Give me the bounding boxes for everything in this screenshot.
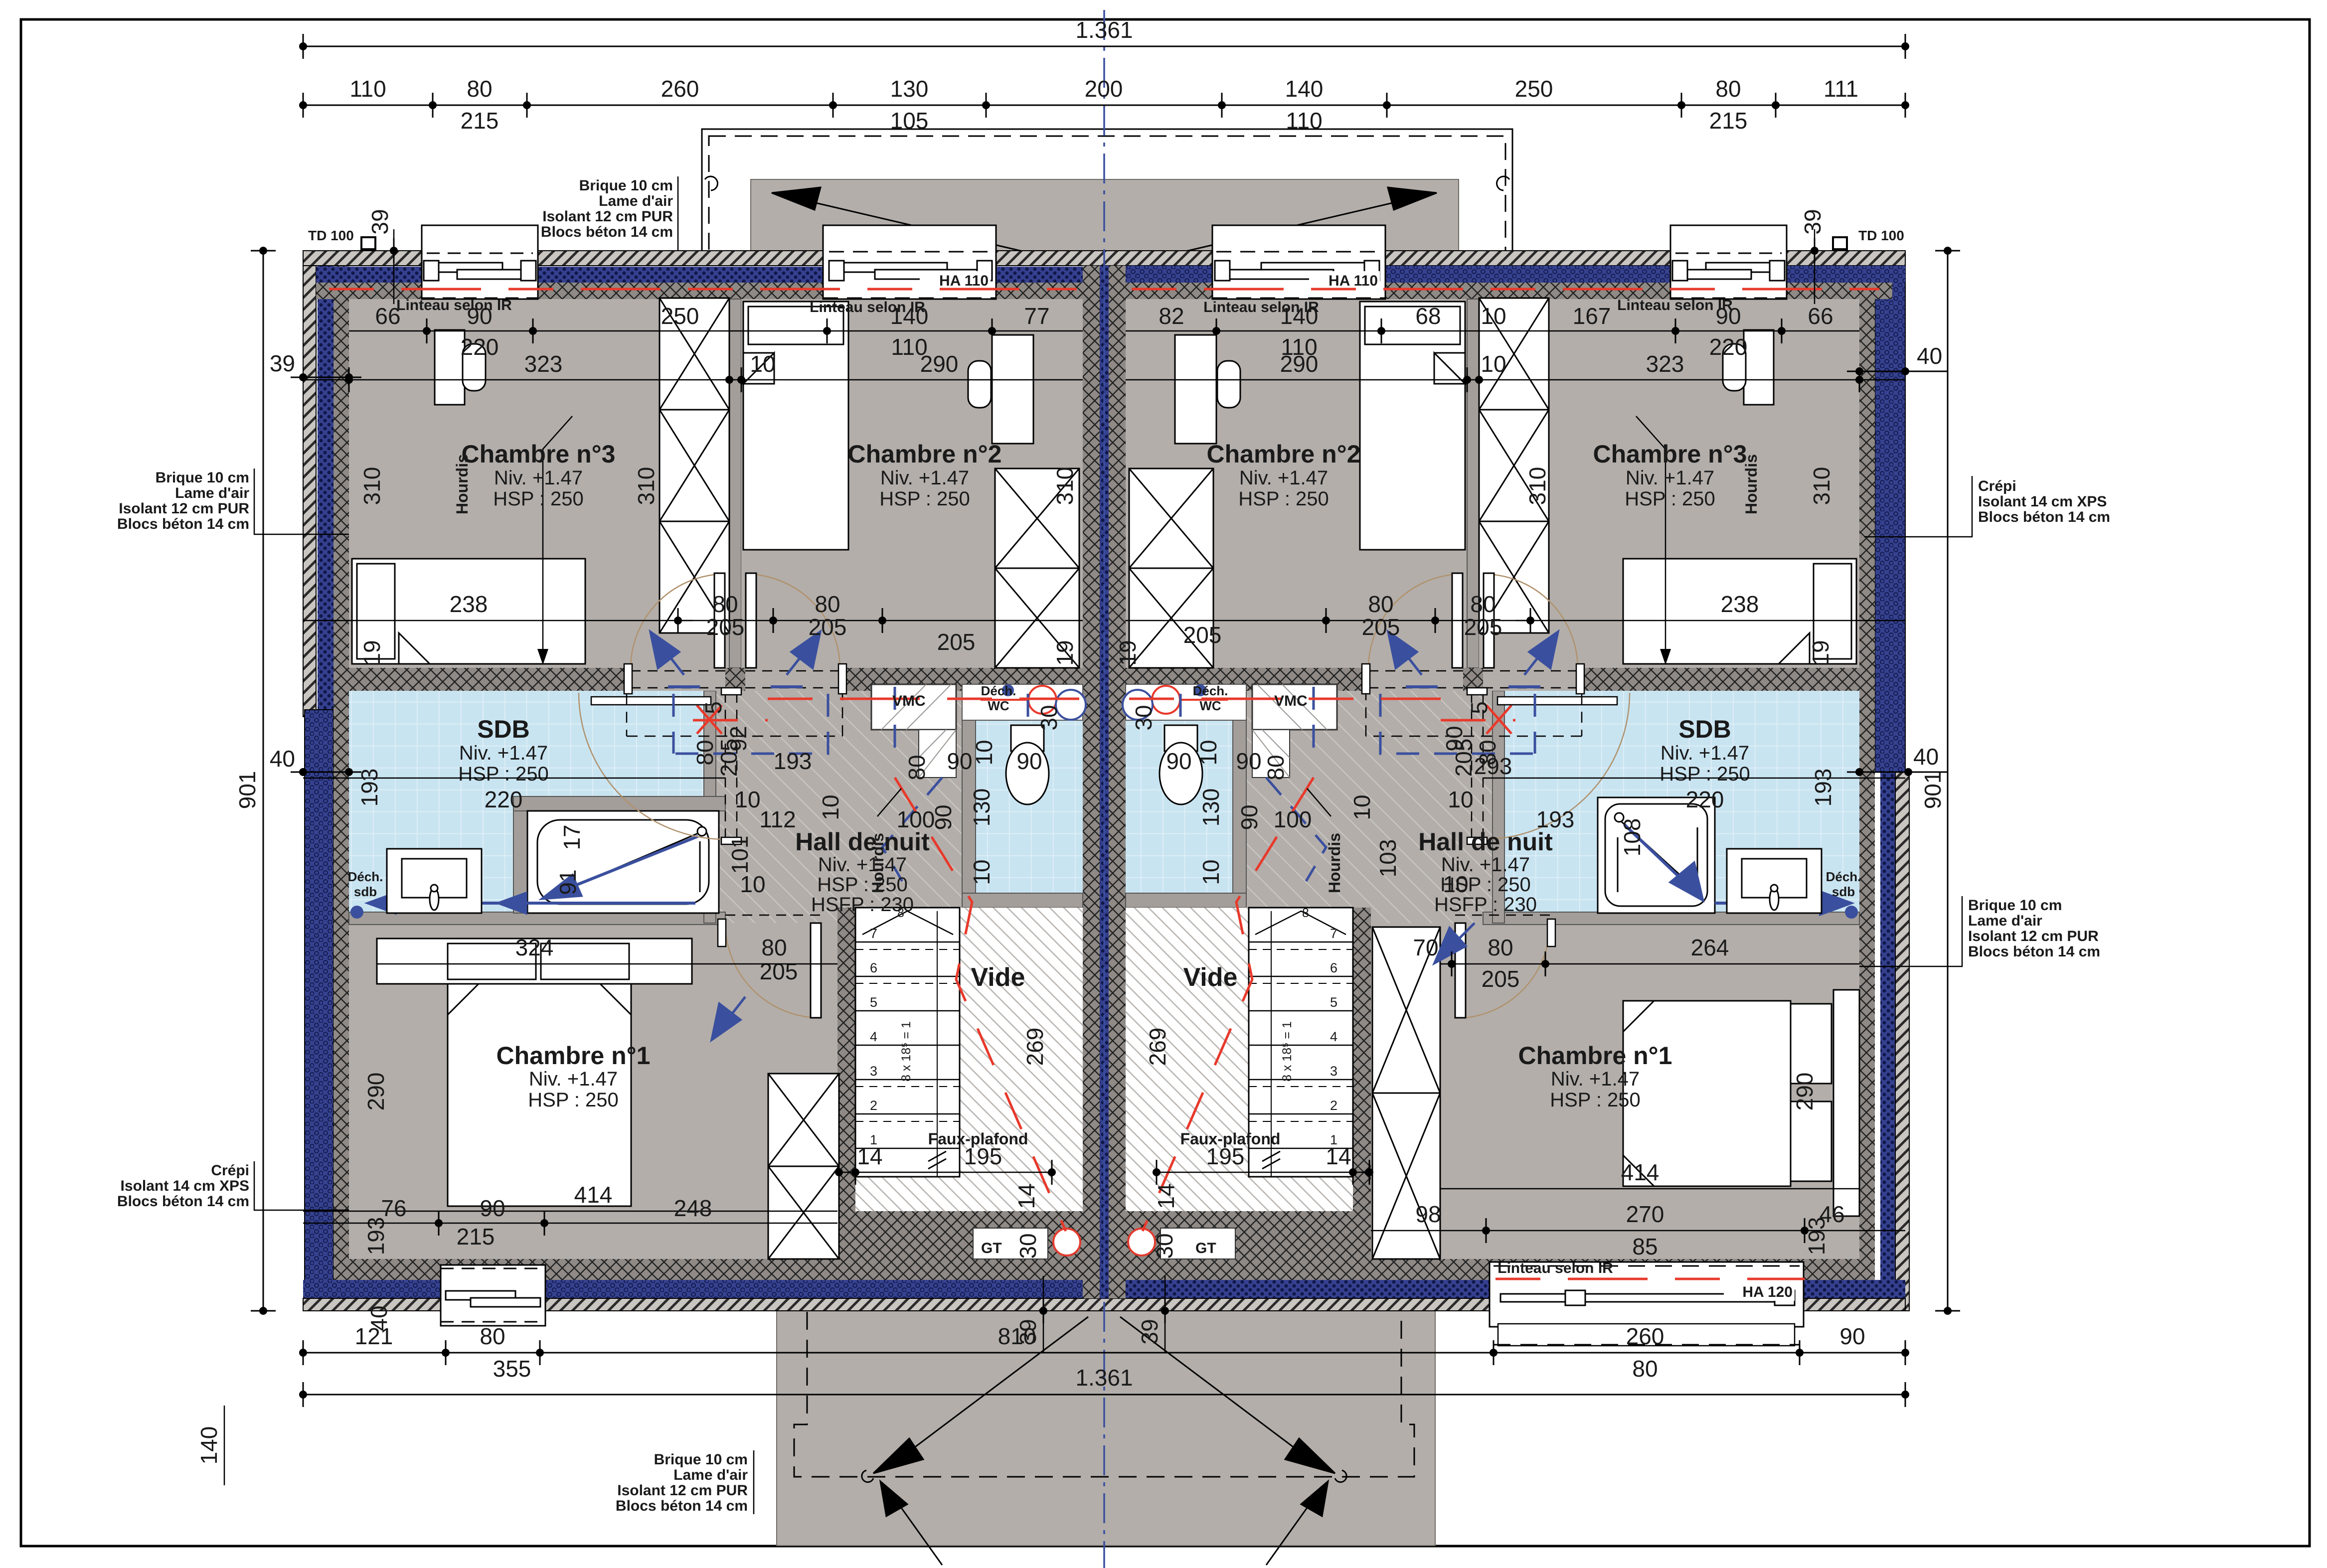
svg-text:Brique 10 cm: Brique 10 cm xyxy=(156,470,249,486)
svg-text:4: 4 xyxy=(1330,1029,1337,1044)
svg-text:17: 17 xyxy=(559,824,585,850)
svg-text:Blocs béton 14 cm: Blocs béton 14 cm xyxy=(1968,943,2100,960)
svg-text:310: 310 xyxy=(633,467,659,505)
svg-text:324: 324 xyxy=(515,935,554,960)
svg-text:10: 10 xyxy=(969,859,995,885)
svg-text:7: 7 xyxy=(1330,926,1337,941)
svg-text:10: 10 xyxy=(1448,786,1473,812)
svg-text:Crépi: Crépi xyxy=(1978,478,2016,494)
svg-text:66: 66 xyxy=(1808,303,1833,329)
svg-text:90: 90 xyxy=(930,804,956,830)
svg-text:66: 66 xyxy=(375,303,400,329)
svg-text:Niv. +1.47: Niv. +1.47 xyxy=(494,467,583,489)
svg-text:82: 82 xyxy=(1159,303,1184,329)
svg-text:270: 270 xyxy=(1626,1201,1664,1227)
svg-text:HSFP : 230: HSFP : 230 xyxy=(811,894,914,916)
svg-text:Chambre n°3: Chambre n°3 xyxy=(1593,440,1747,468)
svg-text:Isolant 14 cm XPS: Isolant 14 cm XPS xyxy=(1978,493,2107,510)
svg-text:Déch.: Déch. xyxy=(1826,869,1861,884)
svg-text:Blocs béton 14 cm: Blocs béton 14 cm xyxy=(616,1498,748,1514)
svg-text:70: 70 xyxy=(1413,935,1438,960)
svg-text:30: 30 xyxy=(1015,1233,1041,1258)
svg-text:205: 205 xyxy=(1183,622,1222,648)
svg-text:220: 220 xyxy=(1709,334,1748,360)
svg-text:205: 205 xyxy=(1482,966,1520,992)
svg-text:193: 193 xyxy=(356,769,382,807)
svg-text:SDB: SDB xyxy=(477,715,530,743)
svg-text:Niv. +1.47: Niv. +1.47 xyxy=(1661,742,1749,764)
svg-text:Chambre n°1: Chambre n°1 xyxy=(1518,1042,1672,1070)
svg-text:TD 100: TD 100 xyxy=(1858,228,1904,243)
svg-text:80: 80 xyxy=(1488,935,1513,960)
svg-text:220: 220 xyxy=(1686,786,1724,812)
svg-text:68: 68 xyxy=(1415,303,1441,329)
svg-text:90: 90 xyxy=(1016,748,1042,774)
svg-text:90: 90 xyxy=(1236,748,1261,774)
svg-text:TD 100: TD 100 xyxy=(308,228,354,243)
svg-text:10: 10 xyxy=(971,740,997,765)
svg-text:100: 100 xyxy=(1274,806,1312,832)
svg-text:Isolant 14 cm XPS: Isolant 14 cm XPS xyxy=(121,1178,249,1194)
svg-text:Hall de nuit: Hall de nuit xyxy=(1418,828,1553,856)
svg-text:HSP : 250: HSP : 250 xyxy=(1660,763,1750,785)
svg-text:3: 3 xyxy=(870,1064,877,1079)
svg-text:10: 10 xyxy=(750,351,775,377)
svg-text:Chambre n°3: Chambre n°3 xyxy=(462,440,616,468)
svg-text:HSP : 250: HSP : 250 xyxy=(1238,488,1329,510)
svg-text:80: 80 xyxy=(761,935,787,960)
svg-text:Blocs béton 14 cm: Blocs béton 14 cm xyxy=(117,1193,249,1210)
svg-text:1.361: 1.361 xyxy=(1075,17,1133,43)
svg-text:290: 290 xyxy=(1280,351,1319,377)
svg-text:30: 30 xyxy=(1036,705,1062,730)
svg-text:80: 80 xyxy=(1470,591,1496,617)
svg-text:80: 80 xyxy=(467,76,492,102)
svg-text:HSP : 250: HSP : 250 xyxy=(528,1089,619,1111)
svg-text:215: 215 xyxy=(1709,108,1748,134)
svg-text:260: 260 xyxy=(661,76,699,102)
svg-text:Crépi: Crépi xyxy=(211,1162,249,1179)
svg-text:46: 46 xyxy=(1819,1201,1844,1227)
svg-text:Lame d'air: Lame d'air xyxy=(673,1467,748,1483)
svg-text:14: 14 xyxy=(1153,1183,1179,1209)
svg-text:GT: GT xyxy=(981,1240,1002,1256)
svg-text:VMC: VMC xyxy=(892,693,926,709)
svg-text:Vide: Vide xyxy=(971,963,1025,992)
svg-text:205: 205 xyxy=(1362,614,1400,640)
svg-text:290: 290 xyxy=(1792,1073,1818,1111)
svg-text:40: 40 xyxy=(1917,343,1942,369)
svg-text:205: 205 xyxy=(937,629,976,655)
svg-text:Linteau selon IR: Linteau selon IR xyxy=(1497,1260,1613,1276)
svg-text:193: 193 xyxy=(1536,806,1575,832)
svg-text:HSP : 250: HSP : 250 xyxy=(879,488,970,510)
svg-text:10: 10 xyxy=(1198,859,1224,885)
svg-text:200: 200 xyxy=(1085,76,1123,102)
svg-text:WC: WC xyxy=(1199,698,1221,713)
svg-text:10: 10 xyxy=(1481,351,1506,377)
svg-text:10: 10 xyxy=(1195,740,1221,765)
svg-text:92: 92 xyxy=(725,726,751,751)
svg-text:Linteau selon IR: Linteau selon IR xyxy=(396,297,512,314)
svg-text:Déch.: Déch. xyxy=(1193,683,1228,698)
svg-text:264: 264 xyxy=(1691,935,1729,960)
svg-text:Niv. +1.47: Niv. +1.47 xyxy=(1626,467,1714,489)
svg-text:HSP : 250: HSP : 250 xyxy=(1550,1089,1641,1111)
svg-text:290: 290 xyxy=(363,1073,389,1111)
svg-text:205: 205 xyxy=(809,614,847,640)
svg-text:310: 310 xyxy=(1809,467,1834,505)
svg-text:290: 290 xyxy=(920,351,959,377)
svg-text:Isolant 12 cm PUR: Isolant 12 cm PUR xyxy=(617,1482,748,1499)
svg-text:10: 10 xyxy=(740,871,765,897)
svg-text:Niv. +1.47: Niv. +1.47 xyxy=(1239,467,1328,489)
svg-text:14: 14 xyxy=(1326,1143,1351,1169)
svg-text:40: 40 xyxy=(1913,744,1939,770)
svg-text:Brique 10 cm: Brique 10 cm xyxy=(579,177,673,194)
svg-text:80: 80 xyxy=(815,591,840,617)
svg-text:19: 19 xyxy=(1052,640,1078,665)
svg-text:269: 269 xyxy=(1145,1028,1170,1066)
svg-text:30: 30 xyxy=(1131,705,1157,730)
svg-text:7: 7 xyxy=(870,926,877,941)
svg-text:Isolant 12 cm PUR: Isolant 12 cm PUR xyxy=(119,500,249,517)
svg-text:193: 193 xyxy=(1810,769,1836,807)
svg-text:80: 80 xyxy=(1368,591,1393,617)
svg-text:Isolant 12 cm PUR: Isolant 12 cm PUR xyxy=(542,208,673,225)
svg-text:85: 85 xyxy=(1632,1234,1658,1259)
svg-text:355: 355 xyxy=(493,1356,531,1382)
svg-text:5: 5 xyxy=(1330,995,1337,1010)
svg-text:19: 19 xyxy=(1115,640,1141,665)
svg-text:140: 140 xyxy=(1285,76,1324,102)
svg-text:Chambre n°1: Chambre n°1 xyxy=(497,1042,651,1070)
svg-text:1.361: 1.361 xyxy=(1075,1365,1133,1391)
svg-text:220: 220 xyxy=(485,786,523,812)
svg-text:195: 195 xyxy=(1206,1143,1245,1169)
svg-text:215: 215 xyxy=(457,1224,495,1250)
svg-text:414: 414 xyxy=(574,1182,613,1208)
svg-text:4: 4 xyxy=(870,1029,877,1044)
svg-text:Blocs béton 14 cm: Blocs béton 14 cm xyxy=(541,224,673,240)
svg-text:14: 14 xyxy=(857,1143,882,1169)
svg-text:39: 39 xyxy=(1137,1319,1163,1344)
svg-text:sdb: sdb xyxy=(1832,884,1855,899)
svg-text:19: 19 xyxy=(359,640,385,665)
svg-text:901: 901 xyxy=(1920,771,1946,809)
svg-text:80: 80 xyxy=(480,1323,505,1349)
svg-text:90: 90 xyxy=(947,748,972,774)
svg-text:5: 5 xyxy=(700,701,726,714)
svg-text:Brique 10 cm: Brique 10 cm xyxy=(1968,897,2062,914)
svg-text:103: 103 xyxy=(1375,839,1401,878)
svg-text:98: 98 xyxy=(1415,1201,1441,1227)
svg-text:Lame d'air: Lame d'air xyxy=(1968,913,2042,929)
svg-text:110: 110 xyxy=(349,76,386,102)
svg-text:Chambre n°2: Chambre n°2 xyxy=(848,440,1002,468)
svg-text:195: 195 xyxy=(964,1143,1002,1169)
svg-text:HA 120: HA 120 xyxy=(1742,1284,1793,1300)
svg-text:215: 215 xyxy=(461,108,499,134)
svg-text:8 x 18⁵ = 1: 8 x 18⁵ = 1 xyxy=(899,1021,913,1082)
svg-text:5: 5 xyxy=(870,995,877,1010)
svg-text:105: 105 xyxy=(890,108,929,134)
svg-text:100: 100 xyxy=(897,806,935,832)
svg-text:112: 112 xyxy=(759,806,796,832)
svg-text:10: 10 xyxy=(818,794,843,820)
svg-text:250: 250 xyxy=(661,303,699,329)
svg-text:Niv. +1.47: Niv. +1.47 xyxy=(1551,1068,1640,1090)
svg-text:8 x 18⁵ = 1: 8 x 18⁵ = 1 xyxy=(1280,1021,1294,1082)
svg-text:10: 10 xyxy=(735,786,760,812)
svg-text:238: 238 xyxy=(450,591,488,617)
svg-text:Déch.: Déch. xyxy=(981,683,1016,698)
svg-text:130: 130 xyxy=(1198,788,1224,827)
svg-text:HA 110: HA 110 xyxy=(939,273,989,289)
svg-text:80: 80 xyxy=(712,591,738,617)
svg-text:3: 3 xyxy=(1330,1064,1337,1079)
svg-text:39: 39 xyxy=(1015,1319,1041,1344)
svg-text:260: 260 xyxy=(1626,1323,1664,1349)
svg-text:901: 901 xyxy=(234,771,260,809)
svg-text:77: 77 xyxy=(1024,303,1049,329)
svg-text:40: 40 xyxy=(366,1305,392,1331)
svg-text:39: 39 xyxy=(367,209,393,234)
svg-text:111: 111 xyxy=(1824,76,1858,102)
svg-text:91: 91 xyxy=(555,869,581,895)
svg-text:HSP : 250: HSP : 250 xyxy=(493,488,584,510)
svg-text:SDB: SDB xyxy=(1678,715,1731,743)
svg-text:Niv. +1.47: Niv. +1.47 xyxy=(459,742,548,764)
svg-text:sdb: sdb xyxy=(354,884,377,899)
svg-text:6: 6 xyxy=(870,960,877,975)
svg-text:90: 90 xyxy=(480,1195,505,1221)
svg-text:GT: GT xyxy=(1195,1240,1216,1256)
svg-text:5: 5 xyxy=(1466,701,1492,714)
svg-text:248: 248 xyxy=(674,1195,712,1221)
svg-text:90: 90 xyxy=(1441,726,1467,751)
svg-text:39: 39 xyxy=(270,350,295,376)
svg-text:VMC: VMC xyxy=(1274,693,1308,709)
svg-text:130: 130 xyxy=(969,788,995,827)
svg-text:HA 110: HA 110 xyxy=(1329,273,1378,289)
svg-text:10: 10 xyxy=(1443,871,1468,897)
svg-text:140: 140 xyxy=(890,303,929,329)
svg-text:167: 167 xyxy=(1573,303,1611,329)
svg-text:10: 10 xyxy=(1349,794,1375,820)
svg-text:Niv. +1.47: Niv. +1.47 xyxy=(880,467,969,489)
svg-text:HSP : 250: HSP : 250 xyxy=(458,763,549,785)
svg-text:101: 101 xyxy=(727,836,753,874)
svg-text:80: 80 xyxy=(692,740,718,765)
svg-text:8: 8 xyxy=(1302,906,1309,920)
svg-text:6: 6 xyxy=(1330,960,1337,975)
svg-text:193: 193 xyxy=(774,748,812,774)
svg-text:Lame d'air: Lame d'air xyxy=(599,193,673,209)
svg-text:220: 220 xyxy=(461,334,499,360)
svg-text:310: 310 xyxy=(1052,467,1078,505)
svg-text:80: 80 xyxy=(904,755,930,780)
svg-text:Niv. +1.47: Niv. +1.47 xyxy=(529,1068,618,1090)
svg-text:310: 310 xyxy=(359,467,385,505)
svg-text:Lame d'air: Lame d'air xyxy=(175,485,249,501)
svg-text:80: 80 xyxy=(1632,1356,1658,1382)
svg-text:80: 80 xyxy=(1715,76,1741,102)
svg-text:323: 323 xyxy=(524,351,563,377)
svg-text:90: 90 xyxy=(1839,1323,1865,1349)
svg-text:HSP : 250: HSP : 250 xyxy=(817,874,908,896)
svg-text:2: 2 xyxy=(870,1098,877,1113)
svg-text:414: 414 xyxy=(1621,1159,1660,1185)
svg-text:250: 250 xyxy=(1515,76,1553,102)
svg-text:80: 80 xyxy=(1263,755,1289,780)
svg-text:323: 323 xyxy=(1646,351,1684,377)
svg-text:10: 10 xyxy=(1481,303,1506,329)
svg-text:2: 2 xyxy=(1330,1098,1337,1113)
svg-text:293: 293 xyxy=(1474,753,1512,779)
svg-text:310: 310 xyxy=(1524,467,1550,505)
svg-text:14: 14 xyxy=(1013,1183,1039,1209)
svg-text:205: 205 xyxy=(706,614,745,640)
svg-text:90: 90 xyxy=(1715,303,1741,329)
svg-text:76: 76 xyxy=(381,1195,406,1221)
svg-text:Blocs béton 14 cm: Blocs béton 14 cm xyxy=(117,516,249,532)
svg-text:30: 30 xyxy=(1152,1233,1177,1258)
svg-text:WC: WC xyxy=(988,698,1009,713)
svg-text:Déch.: Déch. xyxy=(348,869,383,884)
svg-text:39: 39 xyxy=(1800,209,1826,234)
svg-text:130: 130 xyxy=(890,76,929,102)
svg-text:Vide: Vide xyxy=(1183,963,1238,992)
svg-text:90: 90 xyxy=(467,303,492,329)
svg-text:140: 140 xyxy=(196,1426,222,1465)
svg-text:Hourdis: Hourdis xyxy=(1326,833,1343,893)
svg-text:238: 238 xyxy=(1721,591,1759,617)
svg-text:Niv. +1.47: Niv. +1.47 xyxy=(818,854,907,876)
svg-text:HSP : 250: HSP : 250 xyxy=(1625,488,1715,510)
svg-text:90: 90 xyxy=(1166,748,1191,774)
svg-text:19: 19 xyxy=(1808,640,1833,665)
svg-text:Isolant 12 cm PUR: Isolant 12 cm PUR xyxy=(1968,928,2099,944)
svg-text:205: 205 xyxy=(760,958,798,984)
svg-text:40: 40 xyxy=(270,746,295,772)
svg-text:Chambre n°2: Chambre n°2 xyxy=(1207,440,1361,468)
svg-text:Brique 10 cm: Brique 10 cm xyxy=(654,1451,748,1468)
svg-text:205: 205 xyxy=(1464,614,1502,640)
svg-text:269: 269 xyxy=(1022,1028,1048,1066)
svg-text:110: 110 xyxy=(1286,108,1322,134)
svg-text:108: 108 xyxy=(1619,818,1645,857)
svg-text:140: 140 xyxy=(1280,303,1319,329)
svg-text:Blocs béton 14 cm: Blocs béton 14 cm xyxy=(1978,509,2110,525)
svg-text:90: 90 xyxy=(1236,804,1262,830)
